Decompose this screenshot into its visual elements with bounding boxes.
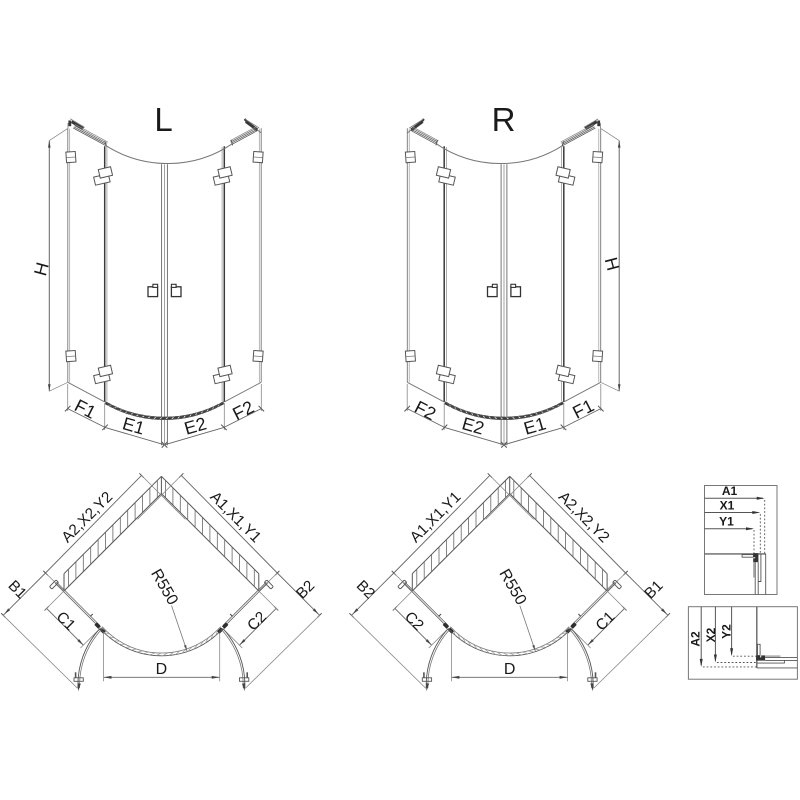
svg-text:D: D [504,661,516,678]
svg-text:A2: A2 [689,631,703,647]
svg-text:Y1: Y1 [719,515,734,529]
svg-text:Y2: Y2 [719,624,733,639]
svg-text:X1: X1 [720,499,735,513]
svg-text:L: L [154,101,172,138]
svg-text:D: D [156,661,168,678]
svg-text:X2: X2 [704,627,718,642]
svg-text:A1: A1 [722,484,738,498]
svg-text:R: R [492,101,516,138]
